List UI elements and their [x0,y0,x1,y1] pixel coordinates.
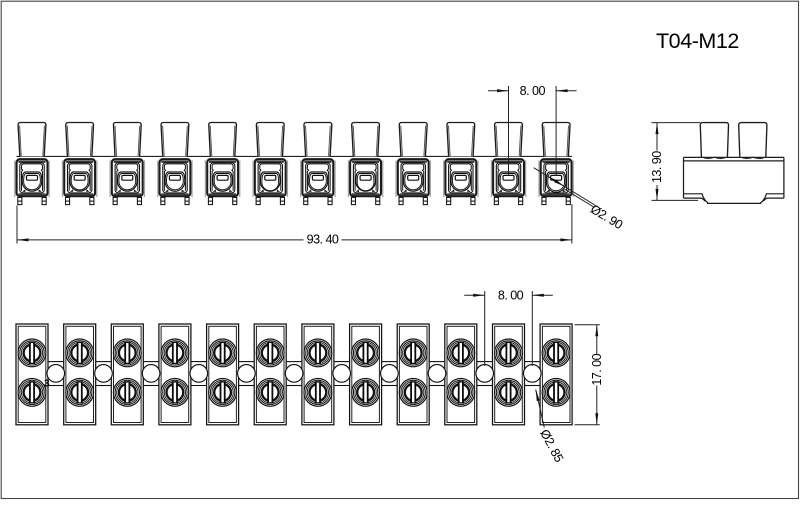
svg-text:3: 3 [44,379,50,390]
svg-text:8. 00: 8. 00 [498,289,524,303]
svg-text:93. 40: 93. 40 [307,233,339,247]
svg-text:17. 00: 17. 00 [590,353,604,385]
svg-text:8. 00: 8. 00 [520,84,546,98]
svg-text:13. 90: 13. 90 [650,151,664,183]
svg-text:T04-M12: T04-M12 [656,29,739,53]
